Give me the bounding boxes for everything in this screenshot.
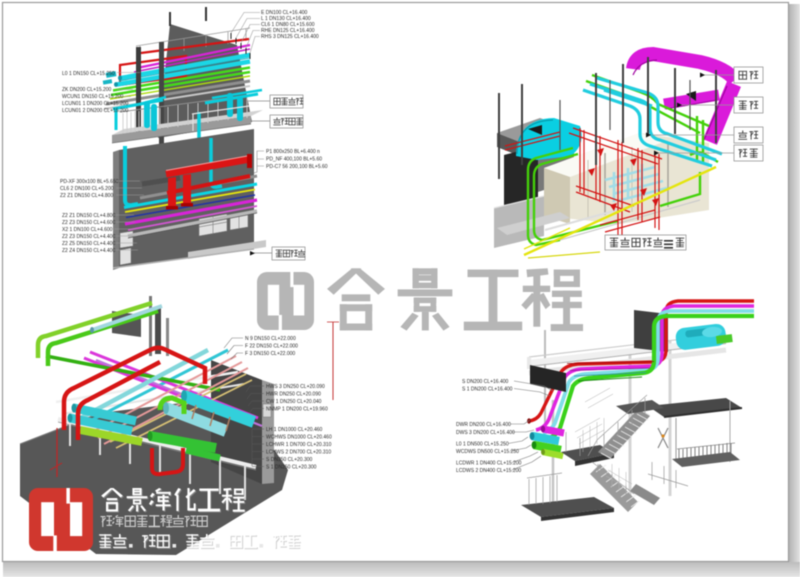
svg-text:DWS 3 DN200 CL+16.400: DWS 3 DN200 CL+16.400 [456, 430, 515, 436]
svg-text:Z2 Z4 DN150 CL+4.400: Z2 Z4 DN150 CL+4.400 [62, 248, 115, 254]
svg-text:LCHWS 2 DN700 CL+20.310: LCHWS 2 DN700 CL+20.310 [266, 450, 331, 456]
svg-text:ZK DN200 CL+15.200: ZK DN200 CL+15.200 [62, 87, 112, 93]
svg-text:X2 1 DN100 CL+4.600: X2 1 DN100 CL+4.600 [62, 227, 113, 233]
svg-text:Z2 Z1 DN150 CL+4.800: Z2 Z1 DN150 CL+4.800 [62, 213, 115, 219]
svg-text:RHS 3 DN125 CL+16.400: RHS 3 DN125 CL+16.400 [261, 34, 319, 40]
svg-text:Z2 Z5 DN150 CL+4.400: Z2 Z5 DN150 CL+4.400 [62, 241, 115, 247]
svg-text:S DN200 CL+16.400: S DN200 CL+16.400 [462, 379, 509, 385]
svg-text:Z2 Z1 DN150 CL+4.800: Z2 Z1 DN150 CL+4.800 [60, 193, 113, 199]
svg-text:WCDWS DN500 CL+15.250: WCDWS DN500 CL+15.250 [456, 449, 519, 455]
svg-text:WCUN1 DN150 CL+15.200: WCUN1 DN150 CL+15.200 [62, 94, 123, 100]
svg-text:CL6 2 DN100 CL+5.200: CL6 2 DN100 CL+5.200 [60, 186, 114, 192]
svg-text:S 1 DN250 CL+20.300: S 1 DN250 CL+20.300 [266, 465, 317, 471]
svg-text:PD-C7 56 200,100 BL+5.60: PD-C7 56 200,100 BL+5.60 [266, 164, 328, 170]
svg-text:HWS 3 DN250 CL+20.090: HWS 3 DN250 CL+20.090 [266, 384, 325, 390]
svg-text:L0 1 DN150 CL+15.250: L0 1 DN150 CL+15.250 [62, 71, 115, 77]
svg-text:LCUN01 1 DN200 CL+15.200: LCUN01 1 DN200 CL+15.200 [62, 101, 129, 107]
svg-text:LCUN01 2 DN200 CL+15.200: LCUN01 2 DN200 CL+15.200 [62, 108, 129, 114]
svg-text:Z2 Z3 DN150 CL+4.600: Z2 Z3 DN150 CL+4.600 [62, 220, 115, 226]
svg-text:L0 1 DN500 CL+15.250: L0 1 DN500 CL+15.250 [456, 442, 509, 448]
svg-text:LH 1 DN1000 CL+20.460: LH 1 DN1000 CL+20.460 [266, 427, 323, 433]
svg-text:N 9 DN150 CL+22.000: N 9 DN150 CL+22.000 [245, 336, 296, 342]
svg-text:Z2 Z3 DN150 CL+4.400: Z2 Z3 DN150 CL+4.400 [62, 234, 115, 240]
svg-text:NNMP 1 DN200 CL+19.960: NNMP 1 DN200 CL+19.960 [266, 407, 328, 413]
svg-text:HWR DN250 CL+20.090: HWR DN250 CL+20.090 [266, 392, 321, 398]
svg-text:P1 800x250 BL+6.400 n: P1 800x250 BL+6.400 n [266, 149, 320, 155]
svg-text:F 22 DN150 CL+22.000: F 22 DN150 CL+22.000 [245, 344, 298, 350]
svg-text:F 3 DN150 CL+22.000: F 3 DN150 CL+22.000 [245, 351, 295, 357]
svg-text:WCHWS DN1000 CL+20.460: WCHWS DN1000 CL+20.460 [266, 435, 332, 441]
svg-text:LCDWR 1 DN400 CL+15.200: LCDWR 1 DN400 CL+15.200 [456, 461, 522, 467]
svg-text:PD-XF 300x100 BL+5.650: PD-XF 300x100 BL+5.650 [60, 179, 119, 185]
svg-text:LCDWS 2 DN400 CL+15.200: LCDWS 2 DN400 CL+15.200 [456, 468, 521, 474]
svg-text:LCHWR 1 DN700 CL+20.310: LCHWR 1 DN700 CL+20.310 [266, 442, 332, 448]
svg-text:PD_NF 400,100 BL+5.60: PD_NF 400,100 BL+5.60 [266, 157, 322, 163]
svg-text:S DN350 CL+20.300: S DN350 CL+20.300 [266, 457, 313, 463]
svg-text:S 1 DN200 CL+16.400: S 1 DN200 CL+16.400 [462, 387, 513, 393]
svg-text:DWR DN200 CL+16.400: DWR DN200 CL+16.400 [456, 422, 511, 428]
svg-text:CW 1 DN250 CL+20.040: CW 1 DN250 CL+20.040 [266, 399, 322, 405]
